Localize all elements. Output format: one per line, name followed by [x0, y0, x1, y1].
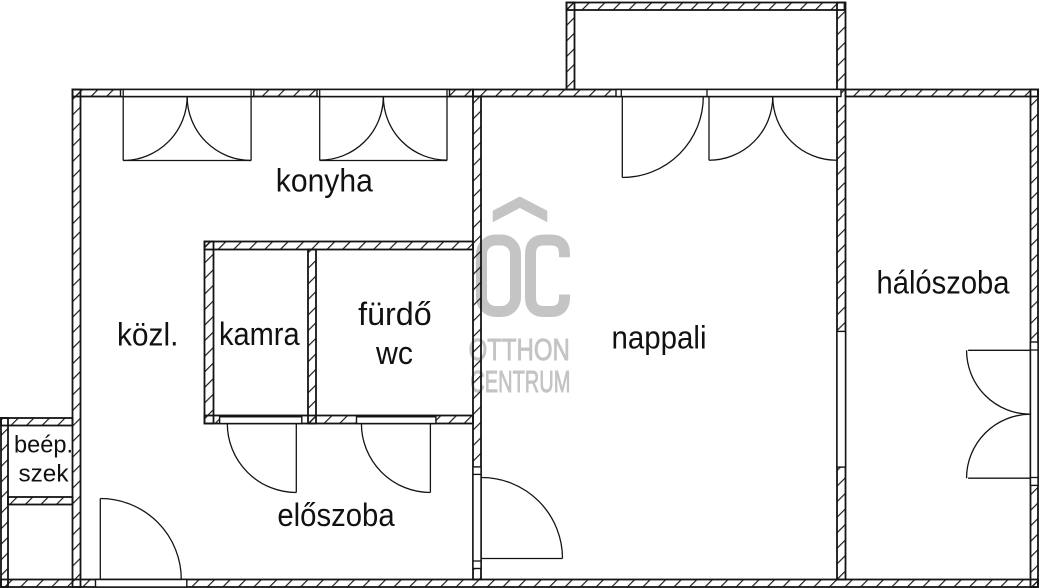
svg-text:közl.: közl. [117, 317, 179, 353]
svg-text:fürdő: fürdő [358, 296, 432, 332]
svg-text:nappali: nappali [612, 320, 707, 356]
svg-text:CENTRUM: CENTRUM [470, 364, 570, 399]
svg-text:kamra: kamra [219, 316, 300, 352]
svg-text:konyha: konyha [276, 162, 373, 198]
svg-text:beép.: beép. [14, 432, 73, 459]
svg-text:szek: szek [19, 461, 70, 488]
svg-text:OTTHON: OTTHON [469, 332, 570, 367]
svg-text:hálószoba: hálószoba [877, 265, 1010, 301]
svg-text:wc: wc [375, 335, 413, 371]
svg-text:előszoba: előszoba [277, 497, 394, 533]
